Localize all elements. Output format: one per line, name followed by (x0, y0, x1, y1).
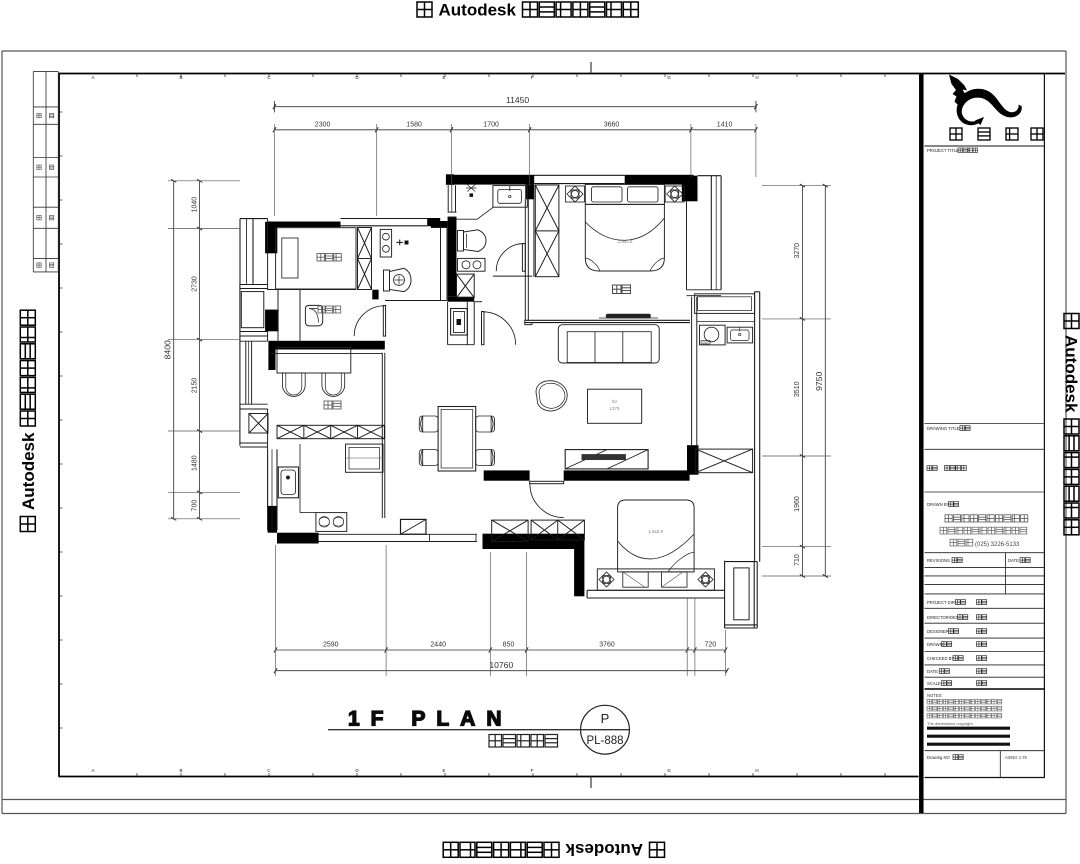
svg-text:1040: 1040 (191, 197, 198, 213)
svg-text:B: B (179, 768, 182, 773)
svg-text:2440: 2440 (430, 642, 446, 649)
svg-text:1700: 1700 (483, 121, 499, 128)
svg-text:3660: 3660 (604, 121, 620, 128)
svg-text:Autodesk: Autodesk (19, 432, 38, 510)
svg-text:Autodesk: Autodesk (1062, 335, 1080, 413)
svg-text:3510: 3510 (794, 381, 801, 397)
svg-text:3270: 3270 (794, 243, 801, 259)
svg-text:Autodesk: Autodesk (565, 840, 643, 859)
svg-text:A: A (91, 768, 94, 773)
svg-text:1580: 1580 (406, 121, 422, 128)
svg-text:H: H (755, 768, 758, 773)
svg-text:DESIGNER: DESIGNER (927, 629, 949, 634)
svg-text:1410: 1410 (717, 121, 733, 128)
svg-text:850: 850 (503, 642, 515, 649)
svg-text:3760: 3760 (599, 642, 615, 649)
svg-text:1379: 1379 (609, 406, 620, 411)
svg-text:E: E (442, 768, 445, 773)
svg-text:NOTES:: NOTES: (927, 693, 943, 698)
svg-text:PL-888: PL-888 (586, 735, 623, 747)
svg-text:DATE: DATE (1008, 558, 1019, 563)
svg-text:DRAWN BY: DRAWN BY (927, 502, 950, 507)
svg-text:DRAWN: DRAWN (927, 642, 943, 647)
svg-text:2300: 2300 (315, 121, 331, 128)
svg-text:DRAWING TITLE: DRAWING TITLE (927, 426, 960, 431)
svg-text:G: G (667, 75, 671, 80)
svg-text:Autodesk: Autodesk (439, 1, 517, 20)
svg-text:A3/NO 1:75: A3/NO 1:75 (1005, 755, 1028, 760)
svg-text:CHECKED BY: CHECKED BY (927, 656, 954, 661)
svg-text:9750: 9750 (814, 372, 824, 391)
svg-text:1.5x2.0: 1.5x2.0 (648, 529, 663, 534)
svg-text:DIRECTOR/DES: DIRECTOR/DES (927, 615, 959, 620)
svg-text:!br: !br (612, 399, 618, 404)
svg-text:F: F (531, 768, 534, 773)
svg-text:A: A (91, 75, 94, 80)
svg-text:10760: 10760 (489, 660, 513, 670)
svg-text:2730: 2730 (191, 276, 198, 292)
svg-text:8400: 8400 (163, 340, 173, 359)
svg-text:DATE: DATE (927, 669, 938, 674)
svg-text:700: 700 (191, 500, 198, 512)
svg-text:PROJECT DIR: PROJECT DIR (927, 600, 955, 605)
svg-text:Drawing NO: Drawing NO (927, 755, 951, 760)
svg-text:710: 710 (794, 554, 801, 566)
svg-text:1.8x2.0: 1.8x2.0 (618, 239, 633, 244)
svg-text:G: G (667, 768, 671, 773)
svg-text:P: P (601, 711, 610, 726)
svg-text:1F PLAN: 1F PLAN (348, 708, 513, 731)
svg-text:1480: 1480 (191, 455, 198, 471)
svg-text:REVISIONS: REVISIONS (927, 558, 950, 563)
svg-text:2590: 2590 (323, 642, 339, 649)
svg-text:720: 720 (704, 642, 716, 649)
svg-text:2150: 2150 (191, 378, 198, 394)
svg-text:H: H (755, 75, 758, 80)
svg-text:(025) 3226-5133: (025) 3226-5133 (975, 542, 1020, 548)
svg-text:11450: 11450 (506, 95, 529, 105)
svg-text:SCALE: SCALE (927, 681, 941, 686)
svg-text:PROJECT TITLE: PROJECT TITLE (927, 148, 959, 153)
svg-text:The dimensions copyright: The dimensions copyright (927, 721, 973, 726)
svg-text:1960: 1960 (794, 496, 801, 512)
